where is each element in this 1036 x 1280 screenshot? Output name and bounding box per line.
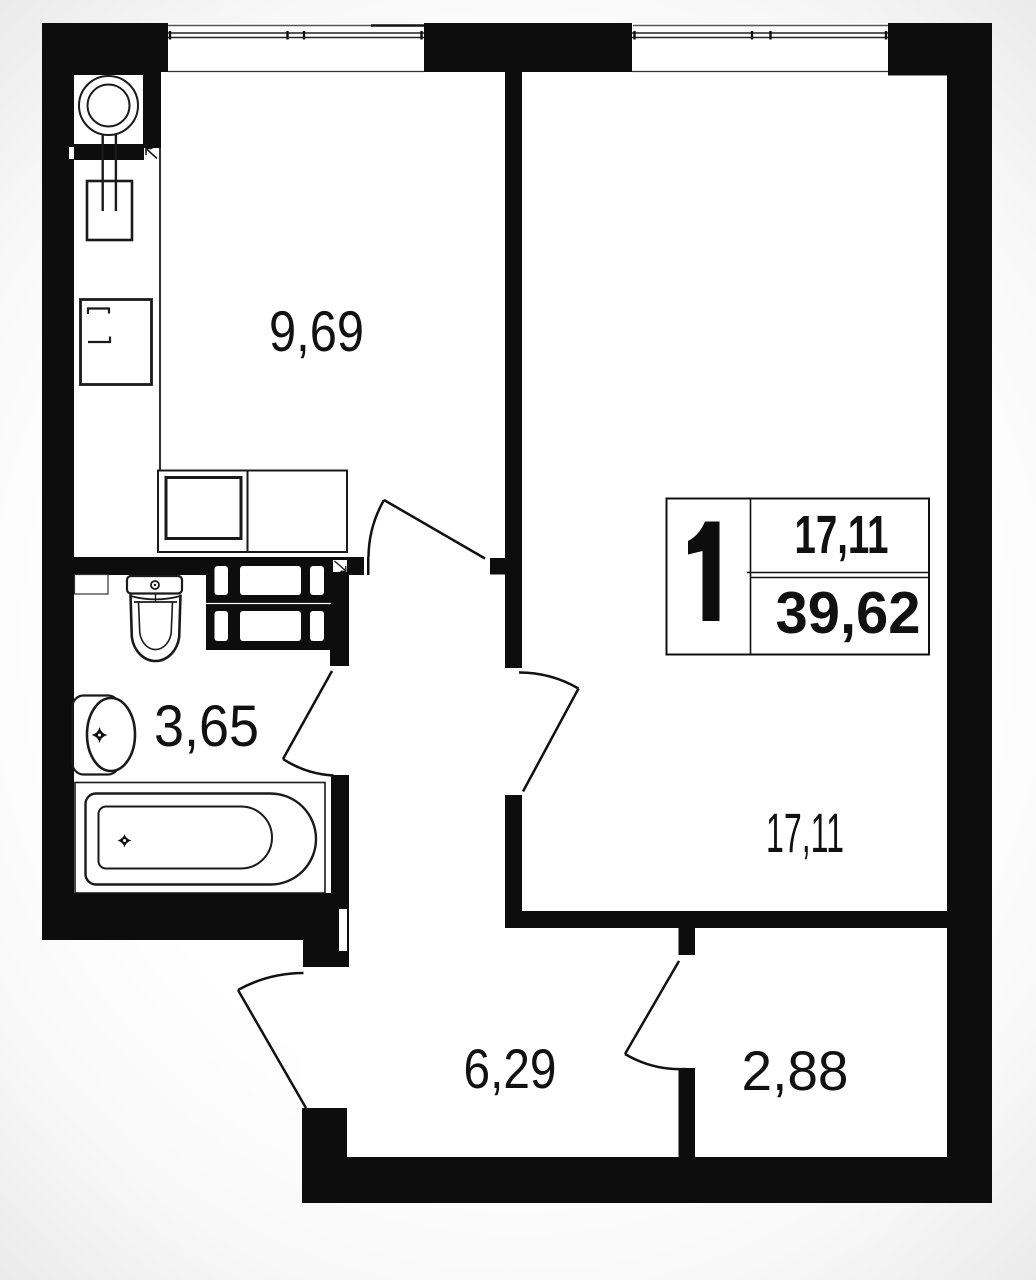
svg-text:3,65: 3,65 (154, 694, 259, 759)
svg-text:17,11: 17,11 (795, 506, 889, 565)
svg-text:2,88: 2,88 (742, 1039, 849, 1102)
svg-text:17,11: 17,11 (766, 801, 844, 864)
svg-text:6,29: 6,29 (464, 1037, 557, 1100)
svg-text:9,69: 9,69 (269, 300, 364, 364)
svg-text:39,62: 39,62 (776, 579, 921, 646)
